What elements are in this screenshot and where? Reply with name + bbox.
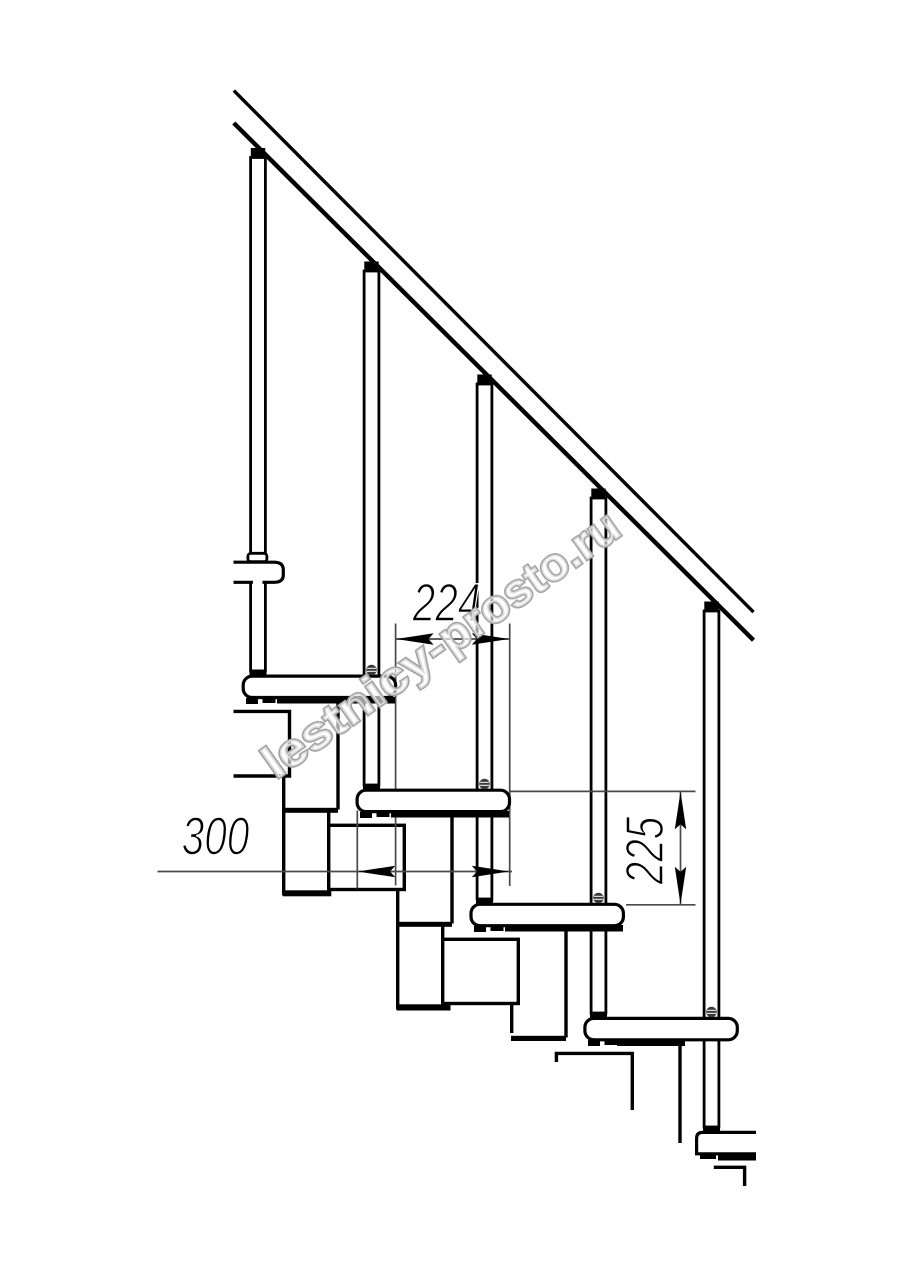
svg-text:300: 300 xyxy=(182,807,250,867)
svg-text:225: 225 xyxy=(616,816,676,885)
svg-text:lestnicy-: lestnicy- xyxy=(252,621,458,788)
